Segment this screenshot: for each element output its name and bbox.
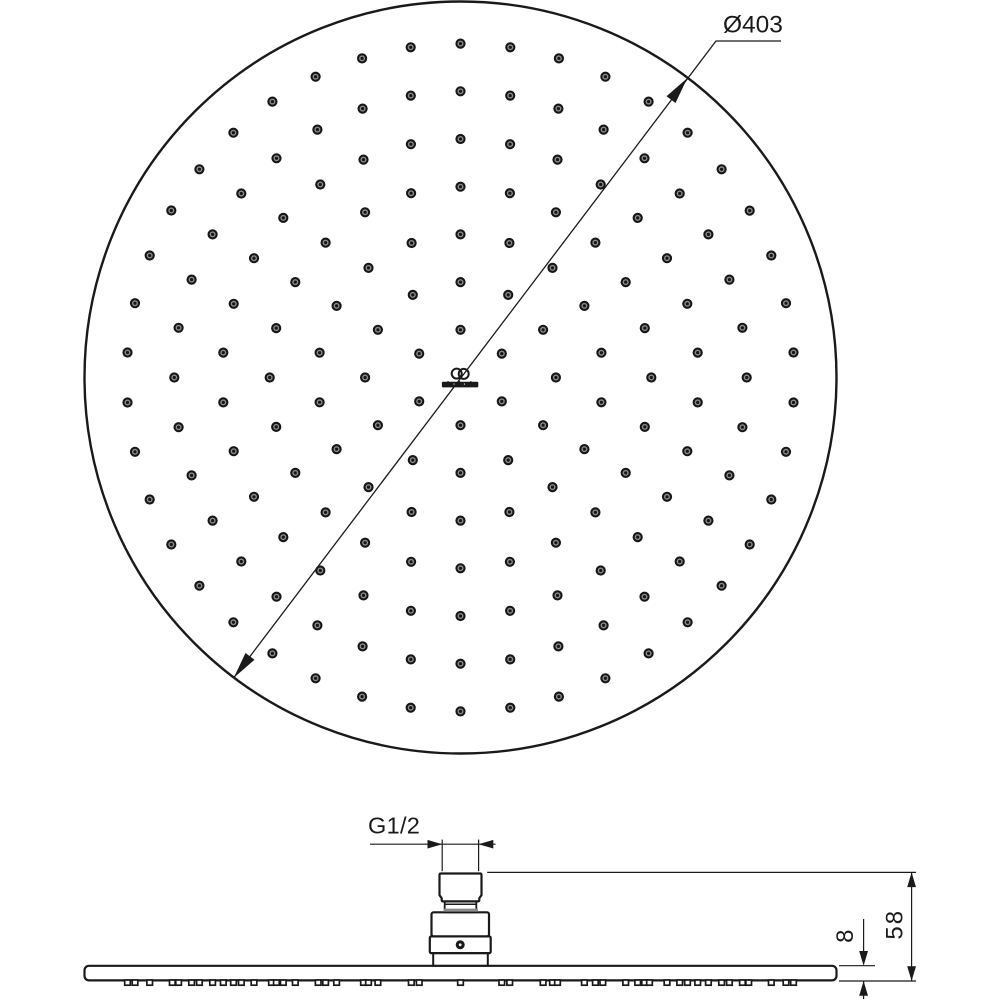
svg-text:G1/2: G1/2 <box>368 813 420 839</box>
svg-text:8: 8 <box>832 930 859 943</box>
svg-text:58: 58 <box>882 909 909 940</box>
svg-text:Ø403: Ø403 <box>723 12 783 39</box>
